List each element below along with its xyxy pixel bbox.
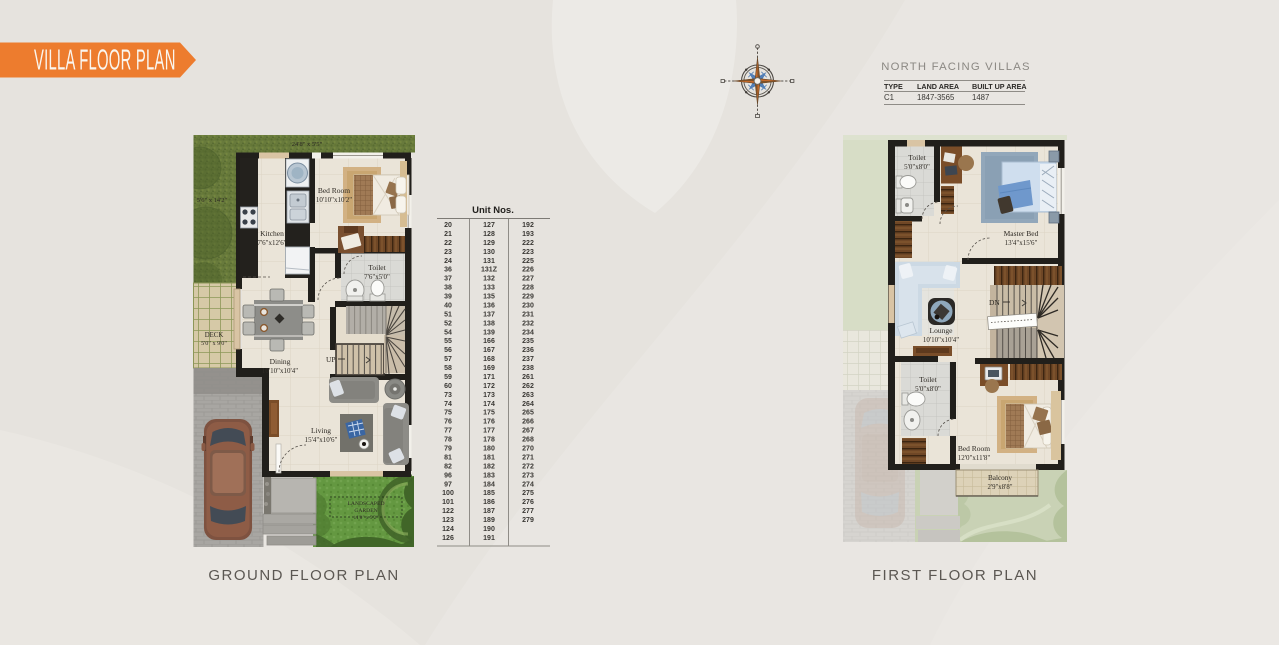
svg-text:DN: DN [989,298,1000,307]
svg-text:10'10"x10'2": 10'10"x10'2" [316,196,352,204]
svg-text:73: 73 [444,392,452,399]
svg-text:21: 21 [444,231,452,238]
svg-text:5'0"x8'0": 5'0"x8'0" [915,385,941,393]
svg-text:185: 185 [483,490,495,497]
svg-text:173: 173 [483,392,495,399]
svg-text:227: 227 [522,276,534,283]
svg-text:VILLA FLOOR PLAN: VILLA FLOOR PLAN [34,43,176,76]
svg-text:177: 177 [483,428,495,435]
svg-text:172: 172 [483,383,495,390]
svg-text:52: 52 [444,320,452,327]
svg-text:39: 39 [444,294,452,301]
svg-text:UP: UP [326,355,336,364]
svg-text:NORTH FACING VILLAS: NORTH FACING VILLAS [881,61,1030,73]
svg-text:133: 133 [483,285,495,292]
svg-text:267: 267 [522,428,534,435]
svg-text:271: 271 [522,454,534,461]
svg-text:128: 128 [483,231,495,238]
svg-text:15'4"x10'6": 15'4"x10'6" [305,436,338,444]
svg-text:167: 167 [483,347,495,354]
svg-text:24: 24 [444,258,452,265]
svg-text:GROUND FLOOR PLAN: GROUND FLOOR PLAN [208,567,399,584]
svg-text:127: 127 [483,222,495,229]
svg-text:262: 262 [522,383,534,390]
svg-text:275: 275 [522,490,534,497]
svg-text:137: 137 [483,311,495,318]
svg-text:261: 261 [522,374,534,381]
svg-text:126: 126 [442,535,454,542]
svg-text:231: 231 [522,311,534,318]
svg-text:238: 238 [522,365,534,372]
svg-text:5'0"x8'0": 5'0"x8'0" [904,163,930,171]
svg-text:10'10"x10'4": 10'10"x10'4" [923,336,959,344]
svg-text:5'0" x 9'0": 5'0" x 9'0" [201,340,227,347]
svg-text:276: 276 [522,499,534,506]
svg-text:59: 59 [444,374,452,381]
svg-text:Toilet: Toilet [919,375,937,384]
svg-text:40: 40 [444,303,452,310]
svg-text:272: 272 [522,463,534,470]
svg-text:138: 138 [483,320,495,327]
svg-text:56: 56 [444,347,452,354]
svg-text:23: 23 [444,249,452,256]
svg-text:22: 22 [444,240,452,247]
svg-text:228: 228 [522,285,534,292]
svg-text:Unit Nos.: Unit Nos. [472,205,514,216]
svg-text:226: 226 [522,267,534,274]
svg-text:96: 96 [444,472,452,479]
svg-text:169: 169 [483,365,495,372]
svg-text:81: 81 [444,454,452,461]
svg-text:266: 266 [522,419,534,426]
svg-text:124: 124 [442,526,454,533]
svg-text:186: 186 [483,499,495,506]
svg-text:123: 123 [442,517,454,524]
svg-text:24'8" x 5'5": 24'8" x 5'5" [292,141,323,148]
svg-text:182: 182 [483,463,495,470]
svg-text:7'6"x12'6": 7'6"x12'6" [257,239,286,247]
svg-text:135: 135 [483,294,495,301]
svg-text:174: 174 [483,401,495,408]
svg-text:79: 79 [444,446,452,453]
svg-text:BUILT UP AREA: BUILT UP AREA [972,82,1027,91]
svg-text:183: 183 [483,472,495,479]
svg-text:139: 139 [483,329,495,336]
svg-text:230: 230 [522,303,534,310]
svg-text:20: 20 [444,222,452,229]
svg-text:184: 184 [483,481,495,488]
svg-text:229: 229 [522,294,534,301]
svg-text:Toilet: Toilet [908,153,926,162]
svg-text:235: 235 [522,338,534,345]
svg-text:97: 97 [444,481,452,488]
svg-text:223: 223 [522,249,534,256]
svg-text:166: 166 [483,338,495,345]
svg-text:11'0" x 9'2": 11'0" x 9'2" [353,515,378,521]
svg-text:270: 270 [522,446,534,453]
svg-text:Balcony: Balcony [988,474,1012,482]
svg-text:13'4"x15'6": 13'4"x15'6" [1005,239,1038,247]
svg-text:131Z: 131Z [481,267,498,274]
svg-text:236: 236 [522,347,534,354]
svg-text:77: 77 [444,428,452,435]
svg-text:78: 78 [444,437,452,444]
svg-text:Living: Living [311,426,331,435]
svg-text:264: 264 [522,401,534,408]
svg-text:1847-3565: 1847-3565 [917,93,955,102]
svg-text:222: 222 [522,240,534,247]
svg-text:171: 171 [483,374,495,381]
svg-text:Dining: Dining [270,357,291,366]
svg-text:190: 190 [483,526,495,533]
svg-text:129: 129 [483,240,495,247]
svg-text:37: 37 [444,276,452,283]
svg-text:2'9"x8'8": 2'9"x8'8" [988,484,1013,491]
svg-text:100: 100 [442,490,454,497]
svg-text:Lounge: Lounge [930,326,954,335]
svg-text:Bed Room: Bed Room [318,186,350,195]
svg-text:76: 76 [444,419,452,426]
svg-text:82: 82 [444,463,452,470]
svg-text:58: 58 [444,365,452,372]
svg-text:274: 274 [522,481,534,488]
svg-text:5'6" x 14'2": 5'6" x 14'2" [197,197,228,204]
svg-text:237: 237 [522,356,534,363]
svg-text:180: 180 [483,446,495,453]
svg-text:131: 131 [483,258,495,265]
svg-text:10'10"x10'4": 10'10"x10'4" [262,367,298,375]
svg-text:Bed Room: Bed Room [958,444,990,453]
svg-text:60: 60 [444,383,452,390]
svg-text:192: 192 [522,222,534,229]
svg-text:189: 189 [483,517,495,524]
svg-text:279: 279 [522,517,534,524]
svg-text:36: 36 [444,267,452,274]
svg-text:Toilet: Toilet [368,263,386,272]
svg-text:136: 136 [483,303,495,310]
svg-text:181: 181 [483,454,495,461]
svg-text:265: 265 [522,410,534,417]
svg-text:225: 225 [522,258,534,265]
svg-text:C1: C1 [884,93,894,102]
svg-text:Kitchen: Kitchen [260,229,284,238]
svg-text:74: 74 [444,401,452,408]
svg-text:38: 38 [444,285,452,292]
svg-text:1487: 1487 [972,93,989,102]
svg-text:55: 55 [444,338,452,345]
svg-text:263: 263 [522,392,534,399]
svg-text:193: 193 [522,231,534,238]
svg-text:168: 168 [483,356,495,363]
svg-text:234: 234 [522,329,534,336]
svg-text:187: 187 [483,508,495,515]
svg-text:54: 54 [444,329,452,336]
svg-text:51: 51 [444,311,452,318]
svg-text:178: 178 [483,437,495,444]
svg-text:101: 101 [442,499,454,506]
svg-text:57: 57 [444,356,452,363]
svg-text:FIRST FLOOR PLAN: FIRST FLOOR PLAN [872,567,1038,584]
svg-text:12'0"x11'8": 12'0"x11'8" [958,454,991,462]
svg-text:Master Bed: Master Bed [1004,229,1039,238]
svg-text:232: 232 [522,320,534,327]
svg-text:122: 122 [442,508,454,515]
svg-text:75: 75 [444,410,452,417]
svg-text:LAND AREA: LAND AREA [917,82,959,91]
svg-text:132: 132 [483,276,495,283]
svg-text:176: 176 [483,419,495,426]
svg-text:TYPE: TYPE [884,82,903,91]
svg-text:DECK: DECK [205,332,224,339]
svg-text:191: 191 [483,535,495,542]
svg-text:130: 130 [483,249,495,256]
svg-text:268: 268 [522,437,534,444]
svg-text:GARDEN: GARDEN [354,508,377,514]
svg-text:277: 277 [522,508,534,515]
svg-text:LANDSCAPED: LANDSCAPED [348,501,385,507]
svg-text:175: 175 [483,410,495,417]
svg-text:273: 273 [522,472,534,479]
